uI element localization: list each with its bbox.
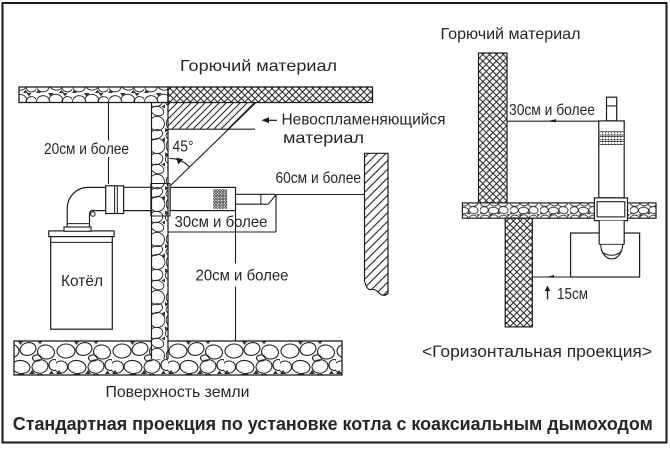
svg-text:20см и более: 20см и более	[196, 267, 289, 284]
svg-text:материал: материал	[283, 130, 364, 147]
svg-text:30см и более: 30см и более	[509, 102, 595, 119]
svg-text:Котёл: Котёл	[61, 273, 103, 290]
svg-text:30см и более: 30см и более	[175, 214, 268, 231]
svg-text:Горючий материал: Горючий материал	[441, 26, 581, 43]
svg-text:<Горизонтальная проекция>: <Горизонтальная проекция>	[422, 343, 652, 361]
svg-text:Поверхность земли: Поверхность земли	[106, 384, 250, 401]
svg-text:Стандартная проекция по устано: Стандартная проекция по установке котла …	[13, 414, 653, 434]
svg-text:45°: 45°	[173, 139, 194, 156]
svg-text:Невоспламеняющийся: Невоспламеняющийся	[282, 111, 446, 128]
svg-text:20см и более: 20см и более	[44, 141, 129, 158]
svg-text:15см: 15см	[557, 286, 588, 303]
svg-text:60см и более: 60см и более	[276, 170, 362, 187]
svg-text:Горючий материал: Горючий материал	[180, 58, 337, 75]
